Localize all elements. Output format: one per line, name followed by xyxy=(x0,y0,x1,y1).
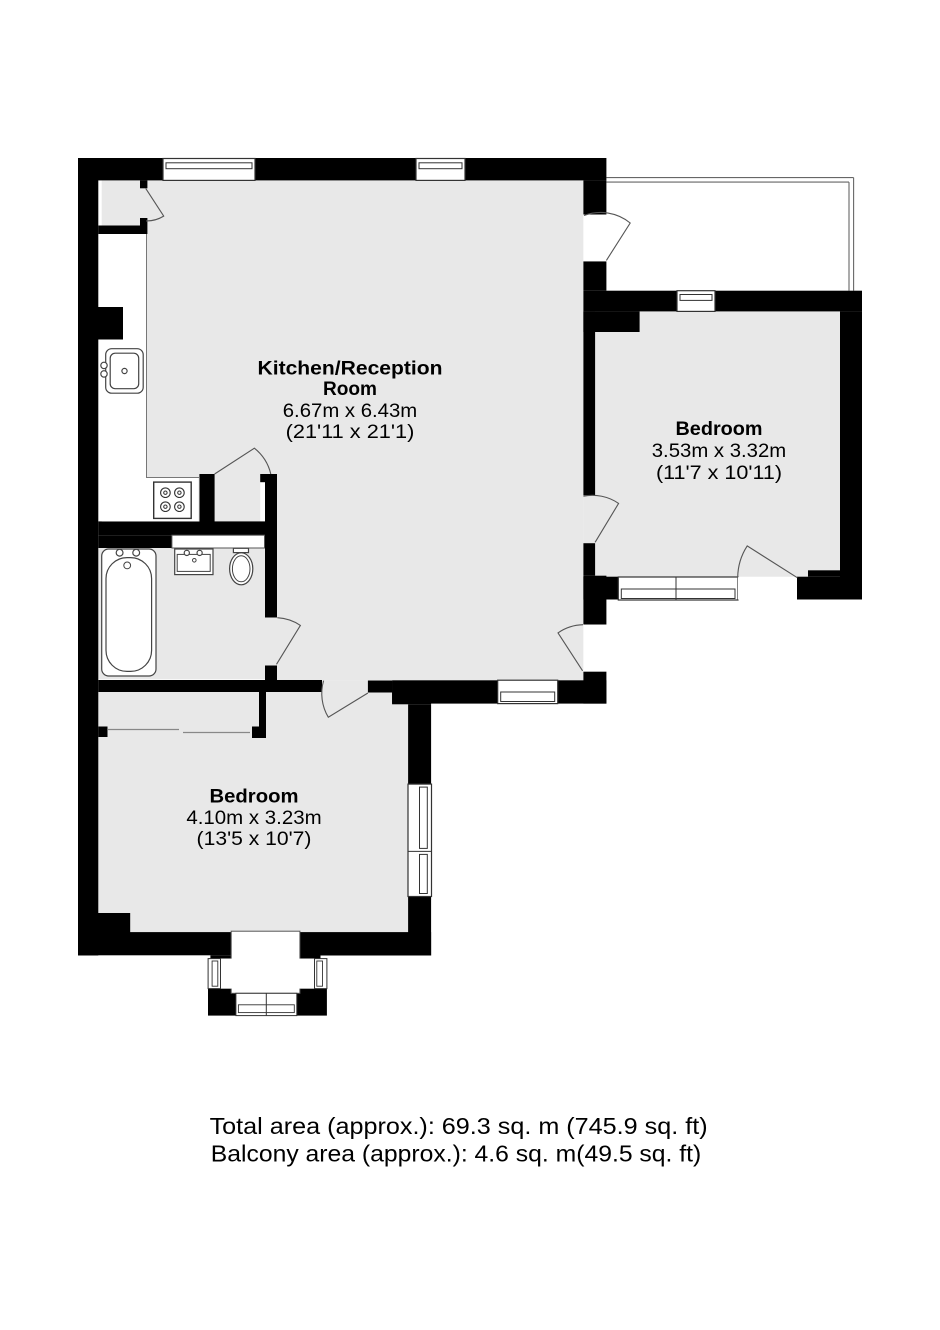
svg-text:Bedroom: Bedroom xyxy=(210,786,299,808)
svg-text:Kitchen/Reception: Kitchen/Reception xyxy=(258,358,443,380)
svg-text:4.10m x 3.23m: 4.10m x 3.23m xyxy=(186,807,321,829)
svg-text:3.53m x 3.32m: 3.53m x 3.32m xyxy=(652,440,787,462)
svg-text:Bedroom: Bedroom xyxy=(676,418,763,440)
svg-text:Balcony area (approx.): 4.6 sq: Balcony area (approx.): 4.6 sq. m(49.5 s… xyxy=(211,1141,702,1167)
svg-text:6.67m x 6.43m: 6.67m x 6.43m xyxy=(283,400,418,422)
svg-text:Total area (approx.): 69.3 sq.: Total area (approx.): 69.3 sq. m (745.9 … xyxy=(210,1113,708,1139)
svg-text:(11'7 x 10'11): (11'7 x 10'11) xyxy=(656,462,782,484)
svg-text:(13'5 x 10'7): (13'5 x 10'7) xyxy=(197,828,312,850)
svg-text:(21'11 x 21'1): (21'11 x 21'1) xyxy=(286,421,415,443)
svg-text:Room: Room xyxy=(323,378,377,400)
